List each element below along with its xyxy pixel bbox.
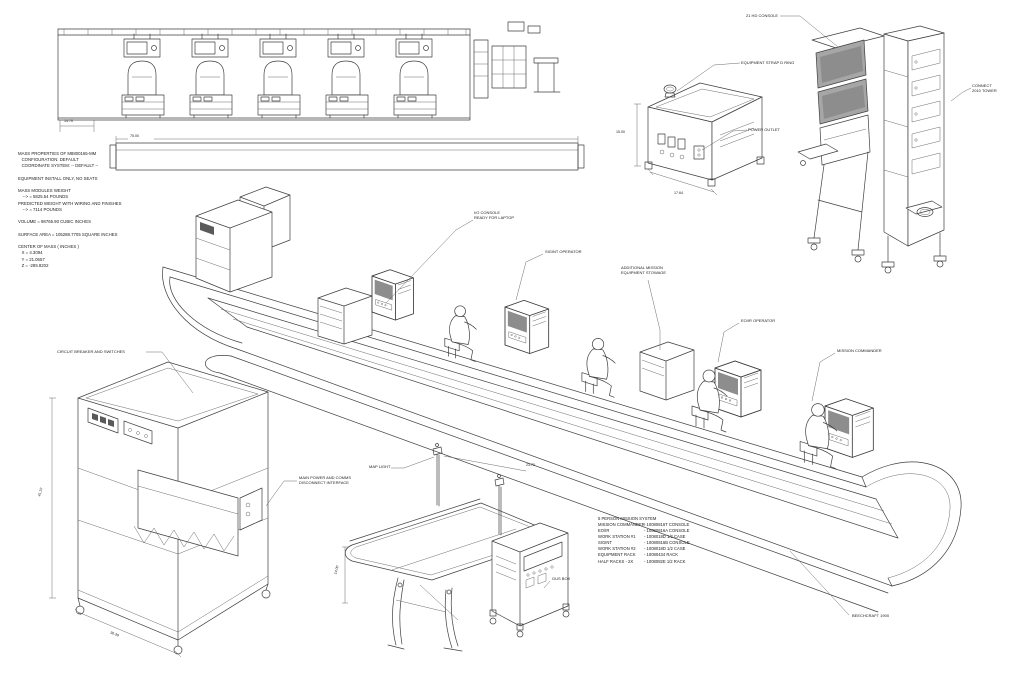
dim-elevation-pitch: 14.70 [64, 119, 73, 123]
callout-eoir-operator: EO/IR OPERATOR [741, 318, 775, 323]
mass-line: Z = -285.8202 [18, 263, 122, 269]
io-console [372, 270, 413, 320]
callout-sigint-operator: SIGINT OPERATOR [545, 249, 581, 254]
sigint-console [505, 300, 549, 353]
callout-beechcraft: BEECHCRAFT 1900 [852, 613, 889, 618]
disconnect-panel [240, 488, 262, 530]
drawing-canvas [0, 0, 1024, 683]
part-item: HALF RACKS - 2X [598, 559, 644, 565]
mass-line: SURFACE AREA = 105288.7705 SQUARE INCHES [18, 232, 122, 238]
drawing-sheet: MASS PROPERTIES OF M8800165-MM CONFIGURA… [0, 0, 1024, 683]
dim-box-width: 17.64 [674, 191, 683, 195]
elevation-plan-band [110, 143, 584, 170]
callout-additional-stowage: ADDITIONAL MISSION EQUIPMENT STOWAGE [621, 265, 666, 276]
table-view [345, 444, 569, 652]
mass-properties-note: MASS PROPERTIES OF M8800165-MM CONFIGURA… [18, 151, 122, 269]
table-legs [388, 578, 462, 651]
parts-list-title: 5 PERSON MISSION SYSTEM [598, 516, 690, 521]
callout-io-console: I/O CONSOLE READY FOR LAPTOP [474, 210, 514, 221]
fuselage-ring [862, 462, 961, 586]
callout-gus-box: GUS BOX [552, 576, 570, 581]
dim-elevation-span: 75.00 [130, 134, 139, 138]
strap-d-ring [664, 85, 676, 93]
stowage-cabinet-forward [318, 288, 372, 344]
dim-box-height: 15.00 [616, 130, 625, 134]
elevation-view [58, 22, 584, 170]
part-number: - 1008082E 1/2 RACK [644, 559, 685, 565]
callout-mission-commander: MISSION COMMANDER [837, 348, 882, 353]
equipment-box-view [645, 83, 764, 186]
parts-list: 5 PERSON MISSION SYSTEM MISSION COMMANDE… [598, 516, 690, 565]
dim-table-span: 23.70 [526, 463, 535, 467]
callout-circuit-breaker: CIRCUIT BREAKER AND SWITCHES [57, 349, 125, 354]
eoir-console [715, 361, 761, 417]
mass-line: PREDICTED WEIGHT WITH WIRING AND FINISHE… [18, 201, 122, 207]
mission-equipment-stowage [640, 342, 694, 400]
aft-equipment-racks [196, 187, 290, 292]
parts-list-row: HALF RACKS - 2X- 1008082E 1/2 RACK [598, 559, 690, 565]
callout-connect-tower: CONNECT 2010 TOWER [972, 83, 997, 94]
callout-main-power: MAIN POWER AND COMMS DISCONNECT INTERFAC… [299, 475, 351, 486]
callout-equipment-strap: EQUIPMENT STRAP D RING [741, 60, 794, 65]
callout-hd-console: 21 HD CONSOLE [746, 13, 778, 18]
console-tower-view [798, 26, 946, 273]
elevation-side-equipment [474, 22, 560, 98]
breaker-rack-view [76, 362, 270, 654]
equipment-tower [882, 26, 946, 273]
operator-figure [582, 338, 615, 397]
callout-map-light: MAP LIGHT [369, 464, 391, 469]
callout-power-outlet: POWER OUTLET [748, 127, 780, 132]
commander-console [825, 399, 873, 458]
